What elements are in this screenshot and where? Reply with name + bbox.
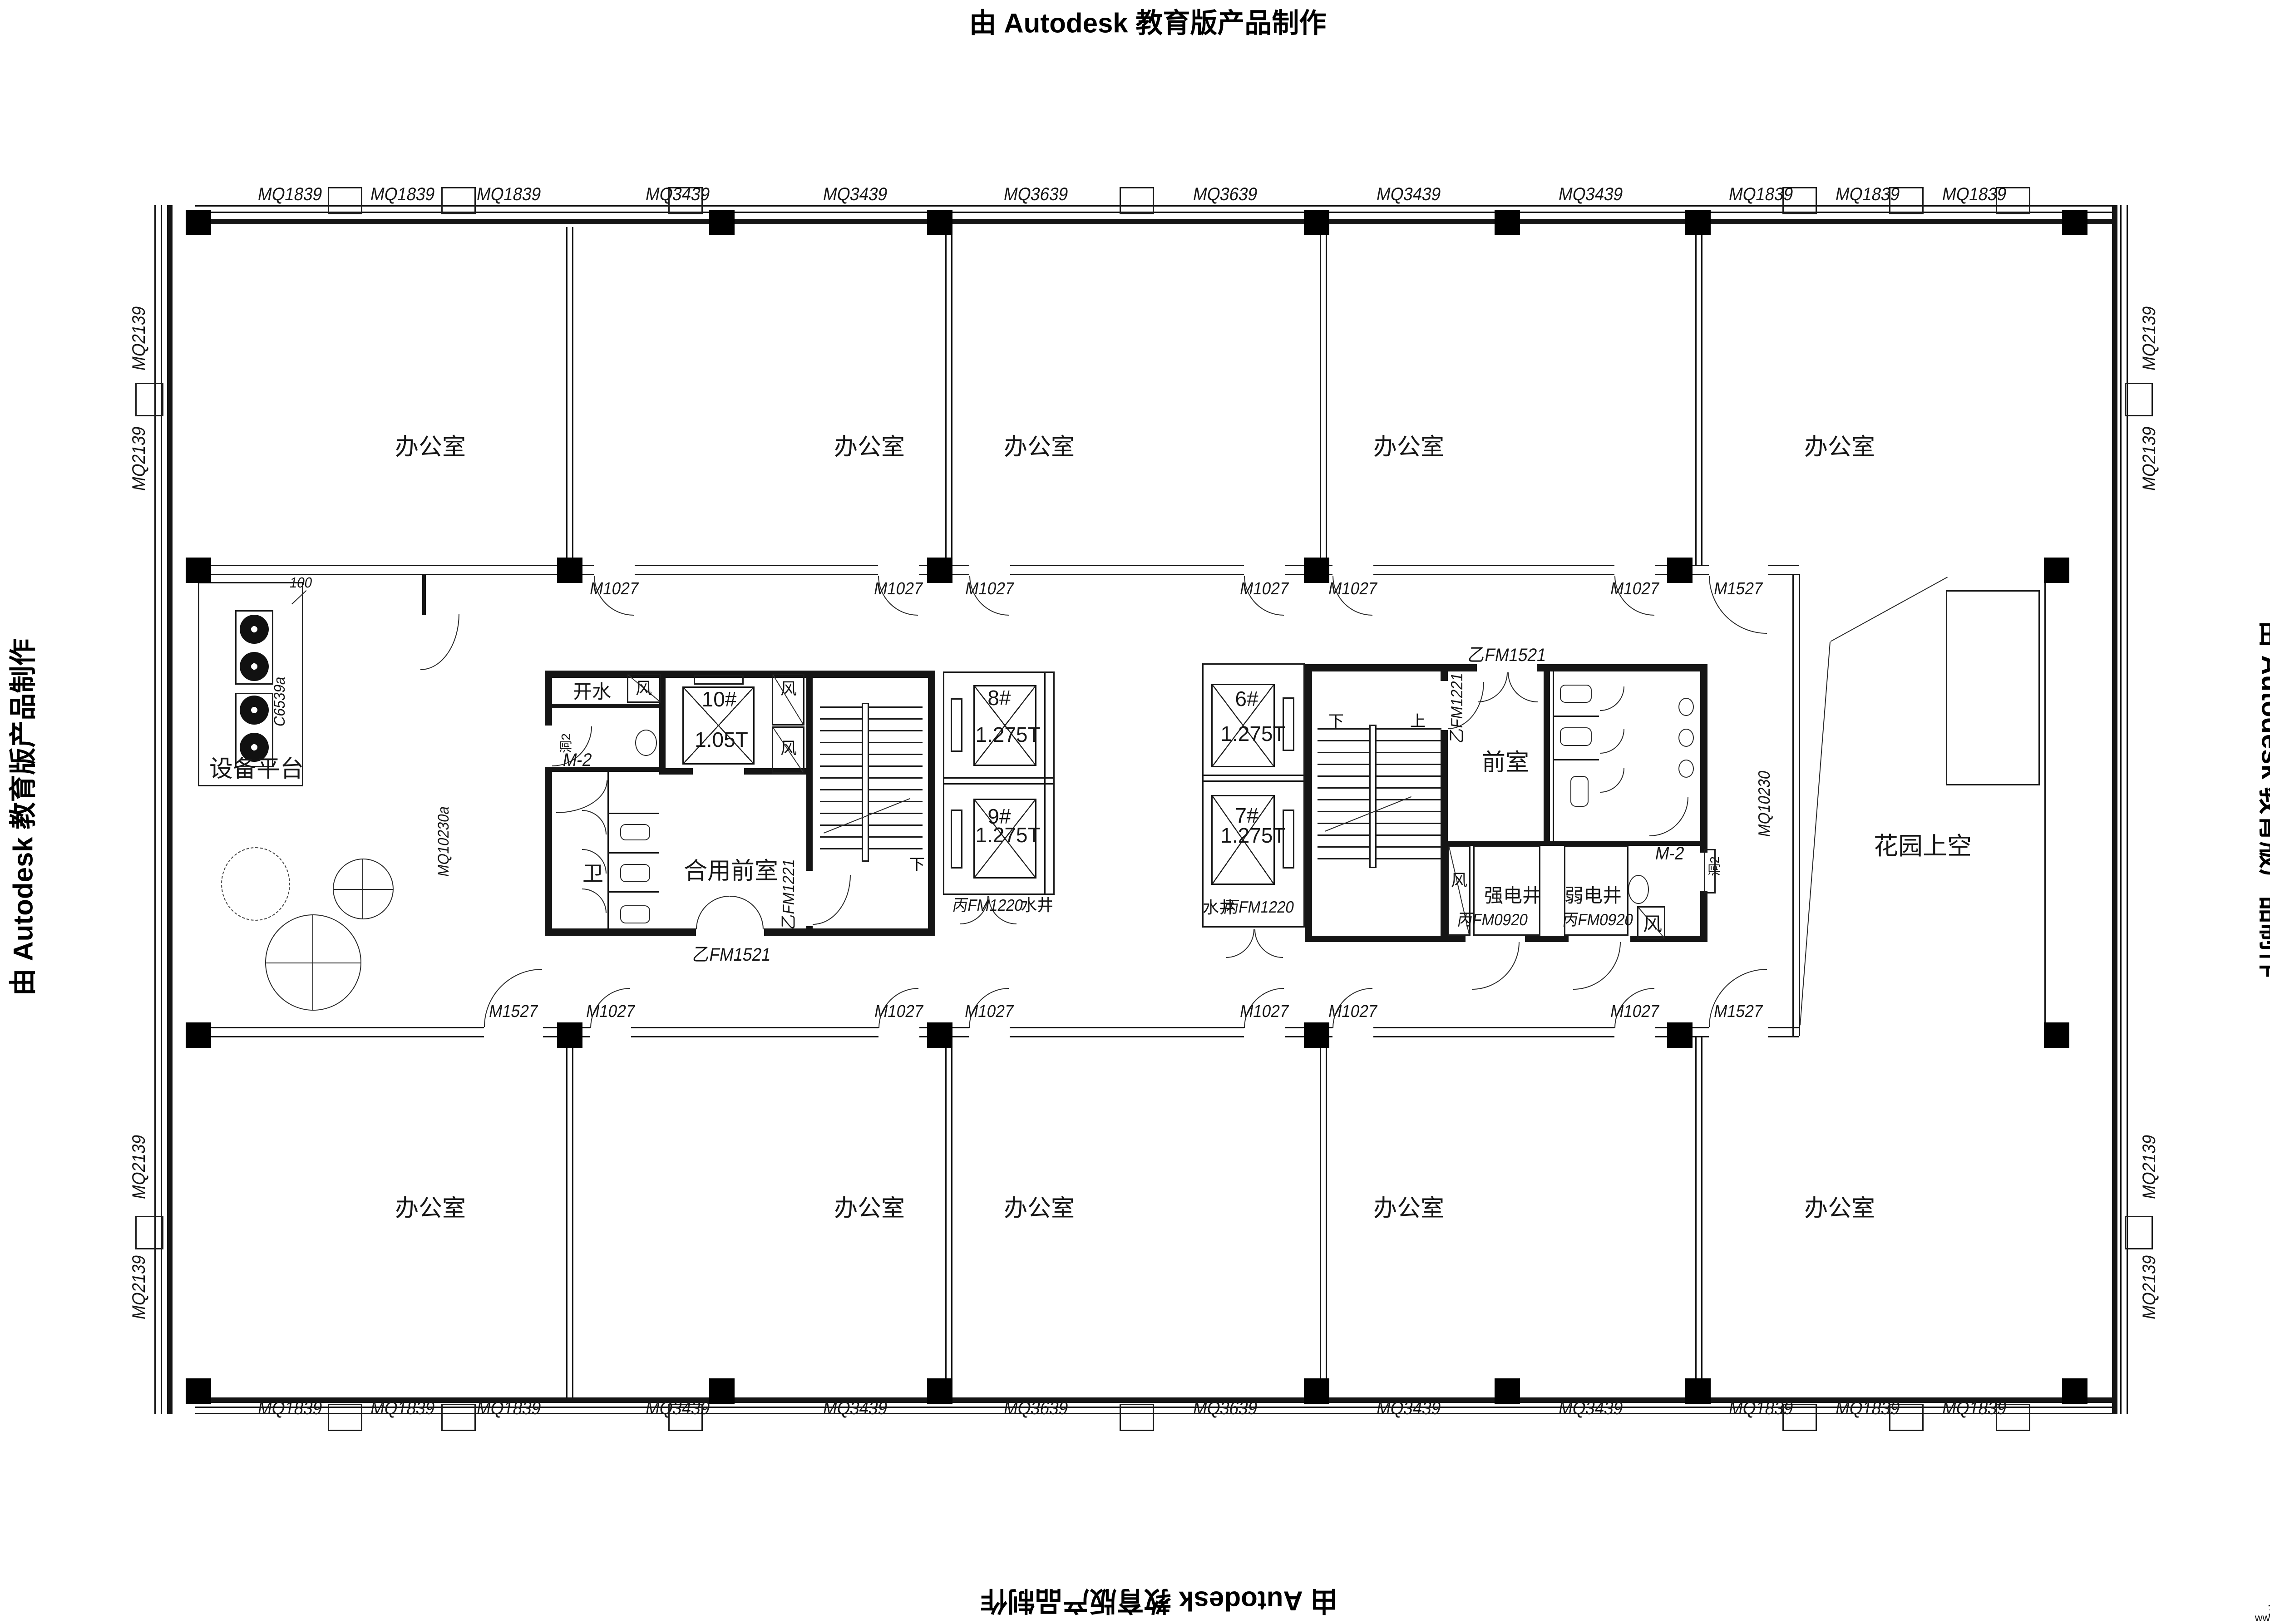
toilet-fixture [620, 905, 650, 923]
fixture-ellipse [1678, 698, 1694, 716]
outline-box [135, 383, 163, 416]
wall [1305, 664, 1448, 671]
room-label-garden-void: 花园上空 [1874, 834, 1972, 859]
door-gap [878, 563, 919, 577]
wall [2044, 574, 2046, 1036]
window-label: MQ3439 [644, 1399, 711, 1417]
door-gap [1477, 664, 1537, 671]
wall [945, 1037, 947, 1397]
floor-plan-sheet: 由 Autodesk 教育版产品制作 由 Autodesk 教育版产品制作 由 … [0, 0, 2270, 1618]
shaft-label-air: 风 [636, 680, 652, 696]
column [927, 1022, 952, 1048]
wall [1799, 574, 1800, 1036]
room-label-office: 办公室 [1804, 435, 1875, 459]
door-swing-arc [1600, 768, 1624, 793]
window-label: MQ2139 [2140, 1254, 2158, 1321]
door-label: 乙FM1221 [780, 858, 797, 931]
door-label: M1027 [1239, 580, 1290, 597]
door-label: M1027 [1609, 580, 1661, 597]
room-label-office: 办公室 [1373, 1197, 1444, 1220]
window-label: MQ3639 [1002, 185, 1070, 203]
window-label: MQ3439 [822, 185, 889, 203]
door-swing-arc [1649, 797, 1688, 836]
outline-box [2125, 383, 2153, 416]
column [1495, 1378, 1520, 1404]
door-gap [484, 1025, 543, 1039]
fixture-ellipse [1678, 760, 1694, 778]
door-swing-arc [696, 896, 730, 929]
door-label: M1027 [873, 1003, 925, 1020]
column [1304, 1378, 1329, 1404]
column [709, 1378, 735, 1404]
window-label: MQ1839 [369, 185, 436, 203]
dimension-label: 100 [289, 575, 314, 590]
door-label: M1027 [964, 580, 1016, 597]
column [186, 558, 211, 583]
door-swing-arc [1226, 929, 1254, 958]
window-label: MQ2139 [2140, 425, 2158, 492]
wall [951, 227, 952, 566]
tree-symbol [221, 847, 290, 921]
room-label-lobby: 前室 [1482, 751, 1529, 775]
wall [1305, 664, 1312, 936]
column [1495, 210, 1520, 235]
door-label: 丙FM1220 [1223, 899, 1296, 915]
wall [607, 772, 609, 928]
door-gap [1441, 681, 1448, 730]
door-label: M1027 [963, 1003, 1015, 1020]
wall [1544, 664, 1550, 846]
outline-box [951, 810, 962, 869]
outline-box [2125, 1216, 2153, 1249]
door-gap [1332, 563, 1373, 577]
wall [1326, 227, 1327, 566]
door-label: M1027 [1327, 1003, 1379, 1020]
room-label-equipment-platform: 设备平台 [209, 757, 304, 781]
column [1304, 1022, 1329, 1048]
wall [1701, 1037, 1702, 1397]
edu-banner-left: 由 Autodesk 教育版产品制作 [1, 639, 41, 996]
window-label: MQ2139 [130, 1254, 148, 1321]
window-label: MQ1839 [1941, 185, 2008, 203]
wall [607, 852, 659, 854]
window-label: MQ3439 [1557, 185, 1624, 203]
wall [1553, 671, 1554, 846]
window-label: MQ1839 [1941, 1399, 2008, 1417]
outline-box [694, 675, 744, 685]
window-label: MQ1839 [475, 1399, 543, 1417]
column [927, 210, 952, 235]
door-swing-arc [813, 875, 851, 925]
window-label: MQ1839 [475, 185, 543, 203]
column [927, 1378, 952, 1404]
door-label: 乙FM1521 [1467, 646, 1548, 664]
window-label: MQ1839 [257, 1399, 324, 1417]
shaft-label-air: 风 [780, 740, 797, 756]
wall [572, 1037, 573, 1397]
fixture-ellipse [1628, 875, 1649, 904]
elevator-id: 6# [1235, 688, 1258, 709]
toilet-fixture [1560, 727, 1592, 746]
elevator-capacity: 1.05T [695, 729, 748, 750]
room-label-shared-lobby: 合用前室 [684, 859, 778, 883]
window-label: MQ3639 [1002, 1399, 1070, 1417]
wall [195, 219, 2114, 224]
edu-banner-bottom: 由 Autodesk 教育版产品制作 [981, 1584, 1338, 1623]
column [1304, 210, 1329, 235]
fixture-ellipse [265, 914, 361, 1011]
outline-box [328, 187, 362, 214]
wall [167, 205, 173, 1414]
wall [951, 1037, 952, 1397]
door-swing-arc [582, 889, 607, 913]
room-label-office: 办公室 [834, 435, 905, 459]
edu-banner-right: 由 Autodesk 教育版产品制作 [2254, 621, 2270, 978]
wall [545, 671, 552, 936]
door-gap [696, 928, 764, 936]
window-label: MQ1839 [1834, 185, 1901, 203]
outline-box [441, 187, 476, 214]
room-label-office: 办公室 [834, 1197, 905, 1220]
fan-unit [240, 652, 269, 681]
column [1667, 1022, 1693, 1048]
stair-treads [1318, 728, 1441, 865]
door-swing-arc [1600, 729, 1624, 754]
fixture-ellipse [635, 730, 657, 756]
door-label: 丙FM0920 [1562, 912, 1635, 928]
window-label: MQ1839 [257, 185, 324, 203]
door-label: M1027 [585, 1003, 637, 1020]
window-label: MQ3439 [1557, 1399, 1624, 1417]
door-label: M1527 [488, 1003, 539, 1020]
shaft-label-strong-electric: 强电井 [1484, 886, 1541, 905]
wall [1553, 759, 1599, 760]
door-label: M1527 [1712, 1003, 1764, 1020]
door-label: M1027 [588, 580, 640, 597]
window-label: MQ10230a [436, 805, 451, 878]
outline-box [1120, 187, 1154, 214]
door-swing-arc [1573, 942, 1621, 990]
column [1685, 210, 1711, 235]
stair-rail [1369, 725, 1377, 868]
window-label: C6539a [272, 675, 287, 728]
window-label: MQ2139 [2140, 1133, 2158, 1200]
window-label: MQ2139 [130, 425, 148, 492]
shaft-label-air: 风 [1451, 872, 1467, 889]
room-label-office: 办公室 [395, 435, 466, 459]
column [557, 1022, 582, 1048]
outline-box [1946, 590, 2040, 785]
door-swing-arc [1508, 672, 1538, 702]
column [186, 210, 211, 235]
column [2044, 1022, 2069, 1048]
room-label-hot-water: 开水 [573, 682, 611, 701]
door-swing-arc [556, 780, 607, 813]
wall [945, 227, 947, 566]
edu-banner-top: 由 Autodesk 教育版产品制作 [969, 1, 1327, 41]
door-gap [1709, 1025, 1768, 1039]
room-label-toilet: 卫 [582, 863, 603, 884]
column [2062, 210, 2087, 235]
wall [422, 574, 426, 615]
door-label: 乙FM1521 [691, 946, 773, 964]
shaft-label-water: 水井 [1021, 897, 1053, 913]
line [1800, 642, 1831, 1025]
window-label: MQ3439 [644, 185, 711, 203]
window-label: MQ3639 [1192, 185, 1259, 203]
wall [928, 671, 935, 936]
room-label-office: 办公室 [1004, 1197, 1075, 1220]
door-label: 乙FM1221 [1449, 671, 1465, 745]
room-label-office: 办公室 [1373, 435, 1444, 459]
door-gap [545, 726, 552, 767]
window-label: MQ2139 [130, 305, 148, 372]
outline-box [328, 1404, 362, 1431]
column [186, 1378, 211, 1404]
wall [552, 704, 659, 708]
window-label: MQ3439 [822, 1399, 889, 1417]
elevator-capacity: 1.275T [1220, 723, 1285, 744]
window-label: MQ3639 [1192, 1399, 1259, 1417]
wall [1326, 1037, 1327, 1397]
outline-box [1120, 1404, 1154, 1431]
door-label: M1027 [1327, 580, 1379, 597]
column [557, 558, 582, 583]
outline-box [135, 1216, 163, 1249]
window-label: MQ10230 [1756, 769, 1772, 838]
door-gap [594, 563, 635, 577]
column [1304, 558, 1329, 583]
wall [1320, 227, 1321, 566]
door-label: M1027 [873, 580, 924, 597]
column [709, 210, 735, 235]
window-label: MQ1839 [1727, 1399, 1795, 1417]
wall [195, 205, 2114, 207]
toilet-fixture [620, 864, 650, 882]
room-label-office: 办公室 [395, 1197, 466, 1220]
door-label: M1027 [1609, 1003, 1661, 1020]
door-gap [1244, 563, 1285, 577]
fixture-ellipse [1678, 729, 1694, 747]
outline-box [951, 698, 962, 752]
door-gap [1466, 936, 1525, 942]
door-label: M1027 [1239, 1003, 1290, 1020]
wall [1320, 1037, 1321, 1397]
wall [566, 227, 567, 566]
shaft-label-air: 风 [780, 681, 797, 697]
stair-direction: 下 [1328, 714, 1344, 729]
door-label: M-2 [1654, 844, 1686, 863]
toilet-fixture [1560, 685, 1592, 703]
door-swing-arc [1472, 942, 1520, 990]
fan-unit [240, 615, 269, 644]
window-label: MQ2139 [130, 1133, 148, 1200]
stair-rail [862, 703, 869, 862]
stair-treads [820, 706, 923, 859]
line [1830, 577, 1948, 642]
door-gap [1614, 563, 1655, 577]
window-label: MQ1839 [369, 1399, 436, 1417]
door-gap [1569, 936, 1630, 942]
door-swing-arc [582, 810, 607, 834]
shaft-label-air: 风 [1643, 915, 1662, 934]
column [186, 1022, 211, 1048]
door-swing-arc [730, 896, 764, 929]
fixture-ellipse [333, 859, 394, 919]
door-gap [969, 563, 1010, 577]
wall [572, 227, 573, 566]
elevator-capacity: 1.275T [975, 824, 1040, 845]
shaft-label-weak-electric: 弱电井 [1564, 886, 1622, 905]
door-gap [806, 871, 813, 926]
wall [607, 813, 659, 814]
toilet-fixture [1570, 776, 1589, 807]
wall [566, 1037, 567, 1397]
room-label-office: 办公室 [1004, 435, 1075, 459]
column [1667, 558, 1693, 583]
door-swing-arc [1254, 929, 1283, 958]
door-gap [1709, 563, 1768, 577]
wall [1792, 574, 1794, 1036]
column [2062, 1378, 2087, 1404]
column [927, 558, 952, 583]
door-label: M-2 [562, 751, 593, 769]
elevator-id: 8# [987, 687, 1011, 708]
wall [1695, 1037, 1697, 1397]
window-label: MQ1839 [1834, 1399, 1901, 1417]
window-label: MQ3439 [1375, 1399, 1442, 1417]
wall [607, 891, 659, 893]
stair-direction: 下 [909, 857, 925, 873]
wall [1701, 227, 1702, 566]
elevator-id: 7# [1235, 805, 1258, 826]
outline-box [441, 1404, 476, 1431]
column [2044, 558, 2069, 583]
stair-direction: 上 [1410, 714, 1426, 729]
fan-unit [240, 696, 269, 725]
wall [2112, 205, 2117, 1414]
window-label: MQ2139 [2140, 305, 2158, 372]
elevator-capacity: 1.275T [975, 724, 1040, 745]
toilet-fixture [620, 824, 650, 840]
wall [195, 212, 2114, 213]
elevator-capacity: 1.275T [1220, 825, 1285, 846]
window-label: MQ3439 [1375, 185, 1442, 203]
column [1685, 1378, 1711, 1404]
wall [1553, 716, 1599, 717]
elevator-id: 10# [702, 689, 737, 710]
opening-label: 洞2 [1708, 856, 1721, 876]
door-label: 丙FM0920 [1456, 912, 1530, 928]
door-label: 丙FM1220 [952, 897, 1025, 913]
room-label-office: 办公室 [1804, 1197, 1875, 1220]
window-label: MQ1839 [1727, 185, 1795, 203]
wall [2120, 205, 2122, 1414]
door-swing-arc [420, 614, 459, 670]
wall [1700, 664, 1707, 942]
wall [1695, 227, 1697, 566]
door-swing-arc [1600, 686, 1624, 711]
door-label: M1527 [1712, 580, 1764, 597]
door-gap [693, 768, 744, 775]
